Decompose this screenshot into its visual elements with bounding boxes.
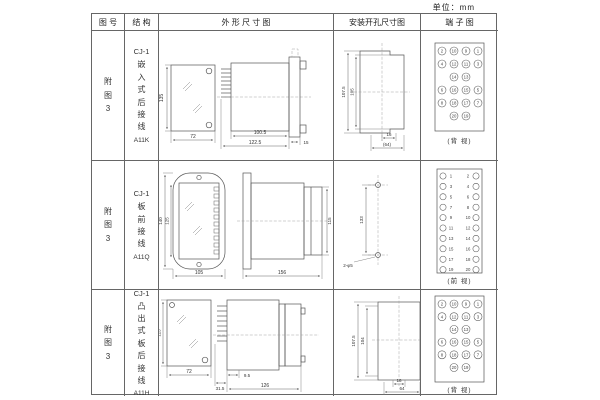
- terminal-number: 18: [452, 100, 457, 105]
- row2-terminal-cell: 1234567891011121314151617181920 (前 视): [421, 161, 498, 290]
- terminal-circle: [440, 235, 446, 241]
- header-install: 安装开孔尺寸图: [334, 14, 421, 31]
- terminal-grid: 2109141211314136161558181772019: [438, 300, 482, 372]
- dim-flange: 15: [303, 140, 309, 145]
- terminal-number: 16: [466, 246, 471, 251]
- dimension-table: 图 号 结 构 外 形 尺 寸 图 安装开孔尺寸图 端 子 图 附图3 CJ-1…: [91, 13, 497, 395]
- terminal-number: 14: [466, 236, 471, 241]
- row2-structure-cell: CJ-1 板前接线 A11Q: [125, 161, 159, 290]
- terminal-number: 13: [464, 74, 469, 79]
- terminal-number: 16: [452, 87, 457, 92]
- dim-height: 113: [159, 329, 161, 337]
- terminal-circle: [440, 224, 446, 230]
- terminal-number: 3: [450, 184, 453, 189]
- terminal-circle: [473, 183, 479, 189]
- terminal-circle: [473, 224, 479, 230]
- terminal-number: 13: [449, 236, 454, 241]
- terminal-number: 7: [477, 352, 480, 357]
- structure-desc: 凸出式板后接线: [137, 301, 147, 388]
- dim-inner: 104: [360, 337, 365, 345]
- terminal-circle: [473, 214, 479, 220]
- terminal-number: 15: [449, 246, 454, 251]
- model-label: CJ-1: [134, 189, 150, 198]
- terminal-number: 10: [452, 302, 457, 307]
- row3-terminal-drawing: 2109141211314136161558181772019 (背 视): [421, 290, 498, 396]
- terminal-number: 9: [465, 302, 468, 307]
- header-fig-no: 图 号: [92, 14, 125, 31]
- dim-total: 122.5: [248, 140, 261, 146]
- terminal-circle: [473, 204, 479, 210]
- dim-pins: 31.5: [215, 386, 224, 391]
- terminal-number: 9: [450, 215, 453, 220]
- row2-install-drawing: 133 2-φ5: [334, 161, 421, 290]
- row3-outline-cell: 113 72 9.5 31.5 126: [159, 290, 334, 396]
- terminal-strip: 1234567891011121314151617181920: [440, 172, 479, 272]
- terminal-number: 4: [441, 61, 444, 66]
- terminal-number: 8: [467, 204, 470, 209]
- terminal-number: 20: [452, 113, 457, 118]
- dim-width: (64): [382, 142, 391, 147]
- terminal-number: 15: [464, 87, 469, 92]
- dim-outer: 107.5: [341, 85, 346, 97]
- dim-offset: 9.5: [243, 373, 250, 378]
- unit-label: 单位：mm: [390, 2, 475, 13]
- fig-no: 附图3: [102, 75, 114, 116]
- row1-fig-no-cell: 附图3: [92, 31, 125, 161]
- terminal-caption: (前 视): [447, 276, 471, 285]
- row3-fig-no-cell: 附图3: [92, 290, 125, 396]
- model-code: A11H: [134, 390, 150, 396]
- row1-outline-cell: 135 72 100.5 15 122.5: [159, 31, 334, 161]
- terminal-number: 17: [449, 256, 454, 261]
- terminal-number: 10: [466, 215, 471, 220]
- terminal-circle: [473, 266, 479, 272]
- terminal-number: 6: [441, 340, 444, 345]
- terminal-number: 12: [452, 61, 457, 66]
- dim-slot: 16: [386, 132, 392, 137]
- model-label: CJ-1: [134, 290, 150, 298]
- terminal-circle: [473, 235, 479, 241]
- terminal-circle: [440, 193, 446, 199]
- terminal-number: 1: [450, 173, 453, 178]
- terminal-number: 20: [452, 365, 457, 370]
- terminal-number: 6: [441, 87, 444, 92]
- terminal-circle: [440, 256, 446, 262]
- terminal-number: 18: [466, 256, 471, 261]
- row2-outline-cell: 140 125 105 156 115: [159, 161, 334, 290]
- terminal-number: 2: [441, 302, 444, 307]
- row1-outline-drawing: 135 72 100.5 15 122.5: [159, 31, 334, 161]
- terminal-number: 4: [467, 184, 470, 189]
- terminal-number: 11: [449, 225, 454, 230]
- terminal-circle: [440, 214, 446, 220]
- terminal-number: 1: [477, 48, 480, 53]
- dim-slot: 16: [396, 378, 402, 383]
- model-code: A11Q: [133, 254, 149, 261]
- header-structure: 结 构: [125, 14, 159, 31]
- dim-width: 105: [194, 270, 203, 276]
- terminal-grid: 2109141211314136161558181772019: [438, 47, 482, 120]
- row1-terminal-cell: 2109141211314136161558181772019 (背 视): [421, 31, 498, 161]
- model-code: A11K: [134, 137, 149, 144]
- row1-install-drawing: 107.5 105 16 (64): [334, 31, 421, 161]
- terminal-number: 7: [450, 204, 453, 209]
- terminal-circle: [440, 183, 446, 189]
- terminal-number: 17: [464, 100, 469, 105]
- terminal-number: 18: [452, 352, 457, 357]
- row3-install-drawing: 107.5 104 16 64: [334, 290, 421, 396]
- row1-install-cell: 107.5 105 16 (64): [334, 31, 421, 161]
- row3-outline-drawing: 113 72 9.5 31.5 126: [159, 290, 334, 396]
- terminal-number: 19: [449, 267, 454, 272]
- terminal-number: 20: [466, 267, 471, 272]
- terminal-number: 5: [477, 87, 480, 92]
- terminal-number: 11: [464, 314, 469, 319]
- terminal-number: 3: [477, 61, 480, 66]
- row2-outline-drawing: 140 125 105 156 115: [159, 161, 334, 290]
- structure-desc: 板前接线: [136, 201, 146, 251]
- terminal-circle: [473, 245, 479, 251]
- terminal-number: 6: [467, 194, 470, 199]
- terminal-caption: (背 视): [447, 385, 471, 394]
- row2-terminal-drawing: 1234567891011121314151617181920 (前 视): [421, 161, 498, 290]
- row3-install-cell: 107.5 104 16 64: [334, 290, 421, 396]
- terminal-number: 5: [477, 340, 480, 345]
- terminal-number: 5: [450, 194, 453, 199]
- dim-height: 135: [159, 93, 165, 102]
- dim-body: 100.5: [253, 130, 266, 136]
- header-terminal: 端 子 图: [421, 14, 498, 31]
- terminal-number: 14: [452, 327, 457, 332]
- terminal-number: 11: [464, 61, 469, 66]
- structure-desc: 嵌入式后接线: [137, 59, 147, 133]
- terminal-number: 10: [452, 48, 457, 53]
- row1-structure-cell: CJ-1 嵌入式后接线 A11K: [125, 31, 159, 161]
- dim-side-h: 115: [327, 216, 332, 224]
- fig-no: 附图3: [102, 205, 114, 246]
- dim-length: 156: [277, 270, 286, 276]
- terminal-number: 12: [466, 225, 471, 230]
- dim-inner: 105: [349, 87, 354, 95]
- terminal-circle: [473, 172, 479, 178]
- dim-width: 72: [190, 134, 196, 140]
- row3-structure-cell: CJ-1 凸出式板后接线 A11H: [125, 290, 159, 396]
- terminal-circle: [440, 245, 446, 251]
- dim-outer-h: 140: [159, 216, 163, 224]
- terminal-number: 12: [452, 314, 457, 319]
- dim-holes: 2-φ5: [343, 263, 353, 268]
- terminal-number: 13: [464, 327, 469, 332]
- row3-terminal-cell: 2109141211314136161558181772019 (背 视): [421, 290, 498, 396]
- terminal-circle: [473, 256, 479, 262]
- terminal-number: 4: [441, 314, 444, 319]
- terminal-number: 8: [441, 100, 444, 105]
- terminal-circle: [440, 266, 446, 272]
- header-outline: 外 形 尺 寸 图: [159, 14, 334, 31]
- dim-outer: 107.5: [351, 335, 356, 347]
- terminal-circle: [473, 193, 479, 199]
- terminal-caption: (背 视): [447, 136, 471, 145]
- terminal-number: 1: [477, 302, 480, 307]
- dim-width: 72: [186, 369, 192, 375]
- row2-install-cell: 133 2-φ5: [334, 161, 421, 290]
- terminal-number: 3: [477, 314, 480, 319]
- terminal-number: 17: [464, 352, 469, 357]
- row2-fig-no-cell: 附图3: [92, 161, 125, 290]
- dim-width: 64: [399, 386, 405, 391]
- row1-terminal-drawing: 2109141211314136161558181772019 (背 视): [421, 31, 498, 161]
- dim-total: 126: [260, 383, 269, 389]
- terminal-number: 16: [452, 340, 457, 345]
- dim-inner-h: 125: [164, 216, 169, 224]
- terminal-number: 2: [467, 173, 470, 178]
- dim-span: 133: [359, 215, 364, 223]
- terminal-number: 14: [452, 74, 457, 79]
- terminal-number: 7: [477, 100, 480, 105]
- terminal-number: 19: [464, 113, 469, 118]
- fig-no: 附图3: [102, 323, 114, 364]
- model-label: CJ-1: [134, 47, 150, 56]
- terminal-number: 9: [465, 48, 468, 53]
- terminal-number: 19: [464, 365, 469, 370]
- terminal-circle: [440, 172, 446, 178]
- terminal-number: 8: [441, 352, 444, 357]
- terminal-number: 15: [464, 340, 469, 345]
- terminal-circle: [440, 204, 446, 210]
- terminal-number: 2: [441, 48, 444, 53]
